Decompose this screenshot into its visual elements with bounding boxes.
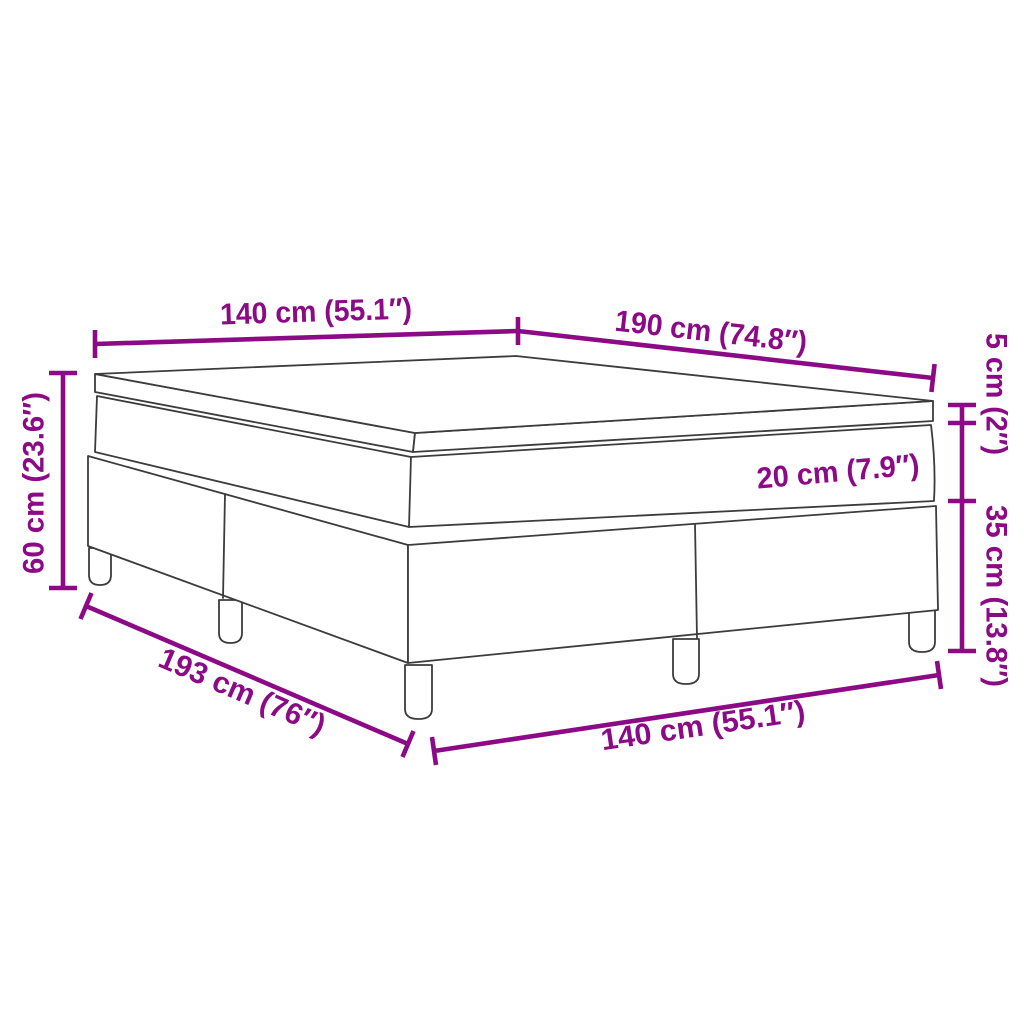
tick-bottom-width-left — [432, 737, 436, 765]
dimension-line-top-width — [95, 331, 518, 344]
dimension-label-topper-height: 5 cm (2″) — [980, 333, 1013, 455]
dimension-label-top-width: 140 cm (55.1″) — [220, 292, 413, 331]
tick-top-length-right — [931, 364, 934, 392]
bed-leg-front-left — [219, 600, 242, 643]
dimension-label-bottom-width: 140 cm (55.1″) — [599, 695, 808, 757]
bed-leg-front-right — [673, 639, 699, 684]
bed-leg-front-corner — [405, 665, 432, 719]
bed-dimension-diagram: 140 cm (55.1″) 190 cm (74.8″) 5 cm (2″) … — [0, 0, 1024, 1024]
diagram-canvas: 140 cm (55.1″) 190 cm (74.8″) 5 cm (2″) … — [0, 0, 1024, 1024]
dimension-label-base-height: 35 cm (13.8″) — [980, 505, 1013, 687]
dimension-label-base-length: 193 cm (76″) — [154, 642, 331, 742]
bed-leg-right-corner — [909, 610, 935, 652]
tick-bottom-width-right — [937, 661, 941, 689]
dimension-label-total-height: 60 cm (23.6″) — [18, 392, 51, 574]
